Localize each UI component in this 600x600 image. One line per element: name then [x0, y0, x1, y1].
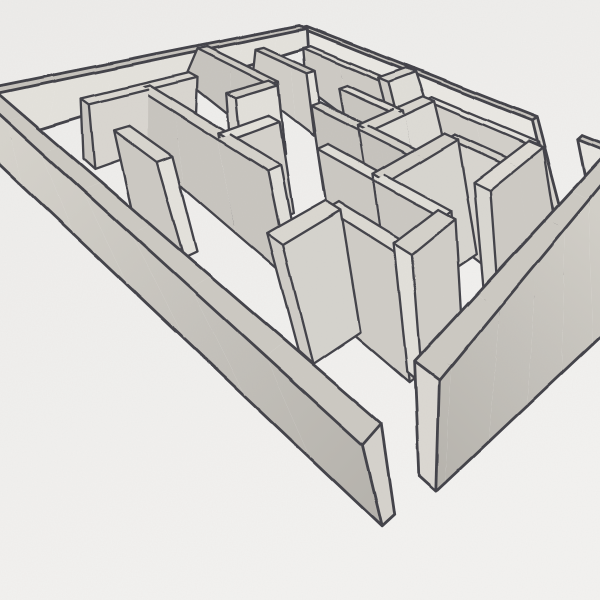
maze-sketch-photo	[0, 0, 600, 600]
paper-grain-texture	[0, 0, 600, 600]
maze-drawing	[0, 0, 600, 600]
